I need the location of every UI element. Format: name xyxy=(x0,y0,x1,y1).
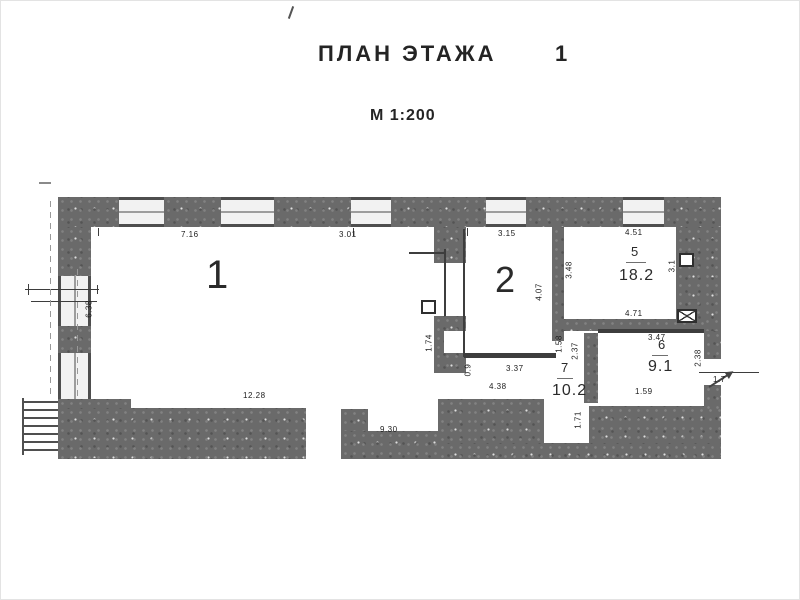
room2-left-line xyxy=(463,229,465,357)
scan-stray-mark xyxy=(288,6,294,19)
wall-bottom-band xyxy=(438,443,721,459)
wall-bottom-right xyxy=(589,406,721,443)
floor-plan-page: ПЛАН ЭТАЖА 1 М 1:200 xyxy=(0,0,800,600)
wall-bottom-1 xyxy=(58,408,306,459)
room-5-label-divider xyxy=(626,262,646,263)
wall-bottom-2 xyxy=(341,431,438,459)
wall-left-mid xyxy=(58,326,91,353)
scale-label: М 1:200 xyxy=(370,107,436,125)
window-top-3 xyxy=(351,197,391,227)
wall-right-mid xyxy=(704,331,721,359)
wall-bottom-block-2 xyxy=(471,399,544,443)
shaft-symbol xyxy=(677,309,697,323)
window-left-2 xyxy=(58,353,91,399)
floor-number: 1 xyxy=(555,41,570,67)
dim-room6-bottom: 1.59 xyxy=(635,387,653,396)
room-6-label-divider xyxy=(652,355,668,356)
room-2-number: 2 xyxy=(495,259,515,301)
dim-room2-right: 4.07 xyxy=(535,283,544,301)
dim-room5-left: 3.48 xyxy=(565,261,574,279)
stair-step xyxy=(23,425,58,427)
room-5-area: 18.2 xyxy=(619,267,654,285)
stair-step xyxy=(23,433,58,435)
dim-hall-depth: 2.37 xyxy=(571,342,580,360)
dim-exit-right: 1.7 xyxy=(713,375,726,384)
room-7-label-divider xyxy=(557,378,573,379)
axis-dash-line-1 xyxy=(50,201,51,397)
room1-right-line xyxy=(444,249,446,316)
dim-exit-passage: 1.71 xyxy=(574,411,583,429)
dim-room7-left: 0.9 xyxy=(464,364,473,377)
window-top-5 xyxy=(623,197,664,227)
window-top-4 xyxy=(486,197,526,227)
wall-top-5 xyxy=(526,197,623,227)
room-1-number: 1 xyxy=(206,253,228,298)
window-top-1 xyxy=(119,197,164,227)
axis-dash-line-2 xyxy=(77,269,78,399)
dim-room2-top: 3.15 xyxy=(498,229,516,238)
wall-top-3 xyxy=(274,197,351,227)
stair-step xyxy=(23,401,58,403)
room-5-number: 5 xyxy=(631,244,638,259)
wall-top-1 xyxy=(58,197,119,227)
dim-room1-top-right: 3.01 xyxy=(339,230,357,239)
stair-step xyxy=(23,441,58,443)
dim-line-left-1 xyxy=(25,289,99,290)
partition-room1-room2-top xyxy=(434,227,466,263)
room-6-area: 9.1 xyxy=(648,358,673,376)
window-top-2 xyxy=(221,197,274,227)
dim-room6-right: 2.38 xyxy=(694,349,703,367)
scan-corner-tick xyxy=(39,182,51,184)
partition-room2-room5 xyxy=(552,227,564,341)
wall-right-lower xyxy=(704,385,721,409)
dim-room1-top-left: 7.16 xyxy=(181,230,199,239)
dim-room5-right: 3.1 xyxy=(668,260,677,273)
room-7-area: 10.2 xyxy=(552,382,587,400)
dim-tick-1 xyxy=(98,228,99,236)
partition-room2-room7 xyxy=(464,353,556,358)
dim-room1-bottom-right: 9.30 xyxy=(380,425,398,434)
room-7-number: 7 xyxy=(561,360,568,375)
dim-line-left-tick-1 xyxy=(28,284,29,295)
page-title: ПЛАН ЭТАЖА xyxy=(318,41,497,67)
wall-left-upper xyxy=(58,227,91,276)
wall-top-4 xyxy=(391,197,486,227)
stair-step xyxy=(23,449,58,451)
dim-room5-bottom: 4.71 xyxy=(625,309,643,318)
dim-room5-top: 4.51 xyxy=(625,228,643,237)
vent-symbol xyxy=(679,253,694,267)
dim-room7-bottom: 4.38 xyxy=(489,382,507,391)
dim-room1-left: 6.38 xyxy=(85,300,94,318)
stair-step xyxy=(23,409,58,411)
stair-step xyxy=(23,417,58,419)
dim-tick-3 xyxy=(467,228,468,236)
wall-bottom-pier xyxy=(341,409,368,431)
dim-room7-top: 3.37 xyxy=(506,364,524,373)
dim-room1-bottom: 12.28 xyxy=(243,391,266,400)
wall-top-6 xyxy=(664,197,721,227)
dim-room6-top: 3.47 xyxy=(648,333,666,342)
dim-line-left-tick-2 xyxy=(97,285,98,294)
wall-top-2 xyxy=(164,197,221,227)
door-leaf-line xyxy=(409,252,446,254)
door-symbol xyxy=(421,300,436,314)
dim-room1-niche-right: 1.74 xyxy=(425,334,434,352)
dim-hall-width: 1.58 xyxy=(555,335,564,353)
